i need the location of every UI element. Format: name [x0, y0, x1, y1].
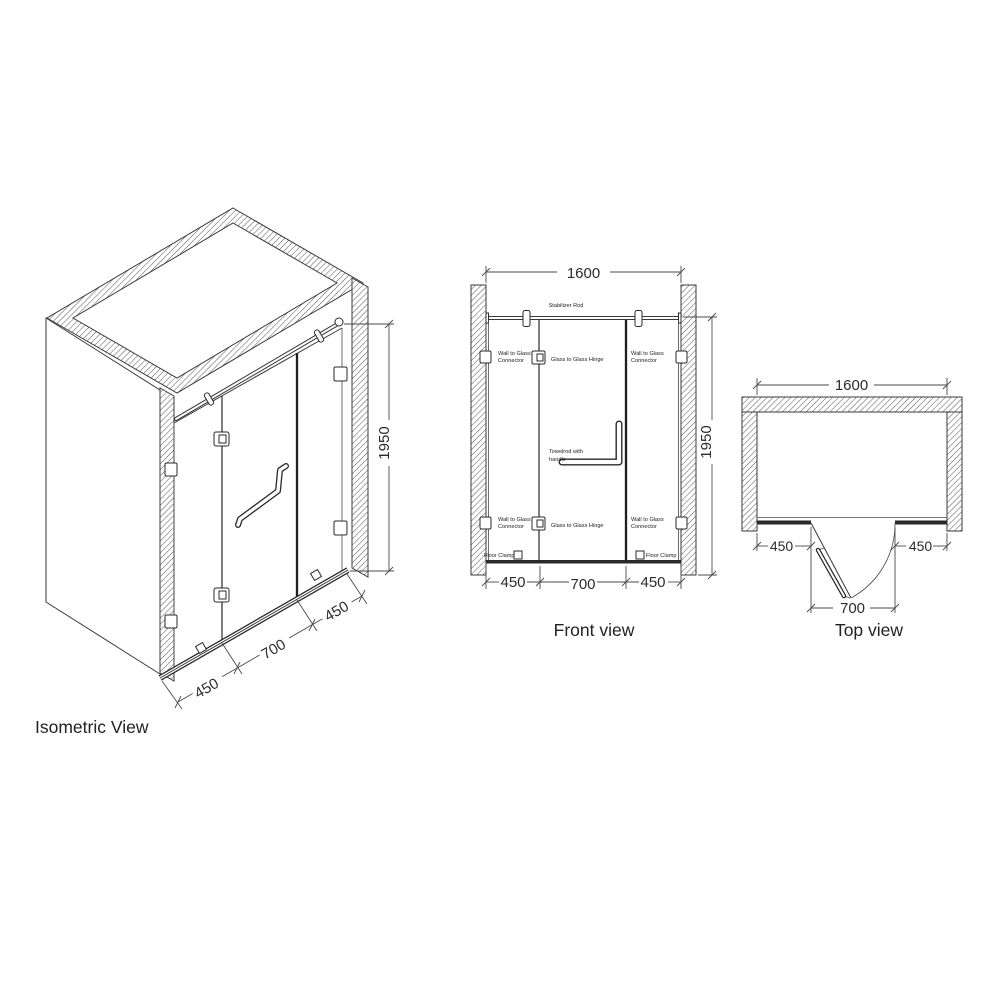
iso-bottom-rail	[160, 570, 348, 678]
label-wall-to-glass-top-left: Wall to Glass Connector	[498, 351, 531, 364]
top-door-open	[811, 523, 895, 598]
front-wall-connector	[480, 351, 491, 363]
front-view: Stabilizer Rod Wall to Glass Connector W…	[471, 265, 717, 640]
iso-wall-connector	[334, 367, 347, 381]
label-wall-to-glass-bottom-right: Wall to Glass Connector	[631, 517, 664, 530]
top-view: 1600 450 450 700	[742, 377, 962, 640]
iso-glass-hinge-detail	[219, 435, 226, 443]
iso-right-wall-column	[352, 278, 368, 577]
top-dim-door-value: 700	[840, 600, 865, 617]
svg-text:handle: handle	[549, 457, 566, 463]
svg-text:Connector: Connector	[498, 524, 524, 530]
label-glass-hinge-top: Glass to Glass Hinge	[551, 357, 604, 363]
front-glass-hinge-detail	[537, 520, 543, 527]
top-dimension-left: 450	[753, 527, 815, 613]
front-wall-connector	[676, 351, 687, 363]
top-wall-right	[947, 412, 962, 531]
iso-glass-hinge-detail	[219, 591, 226, 599]
front-wall-connector	[480, 517, 491, 529]
label-floor-clamp-right: Floor Clamp	[646, 553, 676, 559]
front-left-wall	[471, 285, 486, 575]
front-glass-hinge-detail	[537, 354, 543, 361]
iso-towel-rod	[238, 466, 286, 525]
iso-wall-connector	[334, 521, 347, 535]
iso-dim-height-value: 1950	[376, 426, 393, 459]
front-towel-rod	[562, 424, 619, 462]
technical-drawing: 1950 450 700 450	[0, 0, 1000, 1000]
iso-floor-clamp	[311, 570, 322, 581]
front-right-wall	[681, 285, 696, 575]
top-dimension-door: 700	[807, 600, 899, 617]
iso-rod-end-ball	[335, 318, 343, 326]
top-dimension-right: 450	[891, 527, 951, 613]
label-wall-to-glass-bottom-left: Wall to Glass Connector	[498, 517, 531, 530]
svg-text:Connector: Connector	[498, 358, 524, 364]
svg-text:Wall to Glass: Wall to Glass	[498, 517, 531, 523]
front-floor-clamp	[636, 551, 644, 559]
iso-back-wall-column	[160, 388, 174, 681]
isometric-view-title: Isometric View	[35, 717, 149, 737]
iso-dimension-bottom: 450 700 450	[162, 574, 367, 709]
front-dimension-bottom: 450 700 450	[482, 566, 685, 593]
iso-wall-connector	[165, 463, 177, 476]
iso-dim-right-value: 450	[322, 598, 352, 625]
front-dim-right-value: 450	[640, 574, 665, 591]
svg-text:Wall to Glass: Wall to Glass	[631, 351, 664, 357]
label-floor-clamp-left: Floor Clamp	[484, 553, 514, 559]
front-wall-connector	[676, 517, 687, 529]
top-door-swing-arc	[851, 523, 895, 598]
front-dim-left-value: 450	[500, 574, 525, 591]
isometric-view: 1950 450 700 450	[35, 208, 394, 737]
front-floor-rail	[486, 560, 681, 564]
top-wall-left	[742, 412, 757, 531]
front-dim-center-value: 700	[570, 576, 595, 593]
front-dim-height-value: 1950	[698, 425, 715, 458]
label-wall-to-glass-top-right: Wall to Glass Connector	[631, 351, 664, 364]
drawing-sheet: 1950 450 700 450	[0, 0, 1000, 1000]
svg-text:Connector: Connector	[631, 358, 657, 364]
label-stabilizer-rod: Stabilizer Rod	[549, 303, 584, 309]
top-fixed-panel-left	[757, 521, 811, 525]
iso-dim-center-value: 700	[259, 636, 289, 663]
iso-dim-left-value: 450	[192, 675, 222, 702]
top-view-title: Top view	[835, 620, 903, 640]
top-fixed-panel-right	[895, 521, 947, 525]
top-wall-top	[742, 397, 962, 412]
front-rod-clamp	[635, 311, 642, 327]
label-glass-hinge-bottom: Glass to Glass Hinge	[551, 523, 604, 529]
top-dim-width-value: 1600	[835, 377, 868, 394]
front-dimension-width: 1600	[482, 265, 685, 283]
top-dim-left-value: 450	[770, 538, 794, 554]
svg-text:Wall to Glass: Wall to Glass	[631, 517, 664, 523]
iso-ceiling-beam	[47, 208, 363, 393]
front-rod-clamp	[523, 311, 530, 327]
top-dim-right-value: 450	[909, 538, 933, 554]
front-view-title: Front view	[554, 620, 635, 640]
front-dim-width-value: 1600	[567, 265, 600, 282]
iso-wall-connector	[165, 615, 177, 628]
svg-text:Wall to Glass: Wall to Glass	[498, 351, 531, 357]
svg-text:Towelrod with: Towelrod with	[549, 449, 583, 455]
front-stabilizer-rod	[486, 311, 681, 327]
top-dimension-width: 1600	[753, 377, 951, 395]
svg-text:Connector: Connector	[631, 524, 657, 530]
front-floor-clamp	[514, 551, 522, 559]
